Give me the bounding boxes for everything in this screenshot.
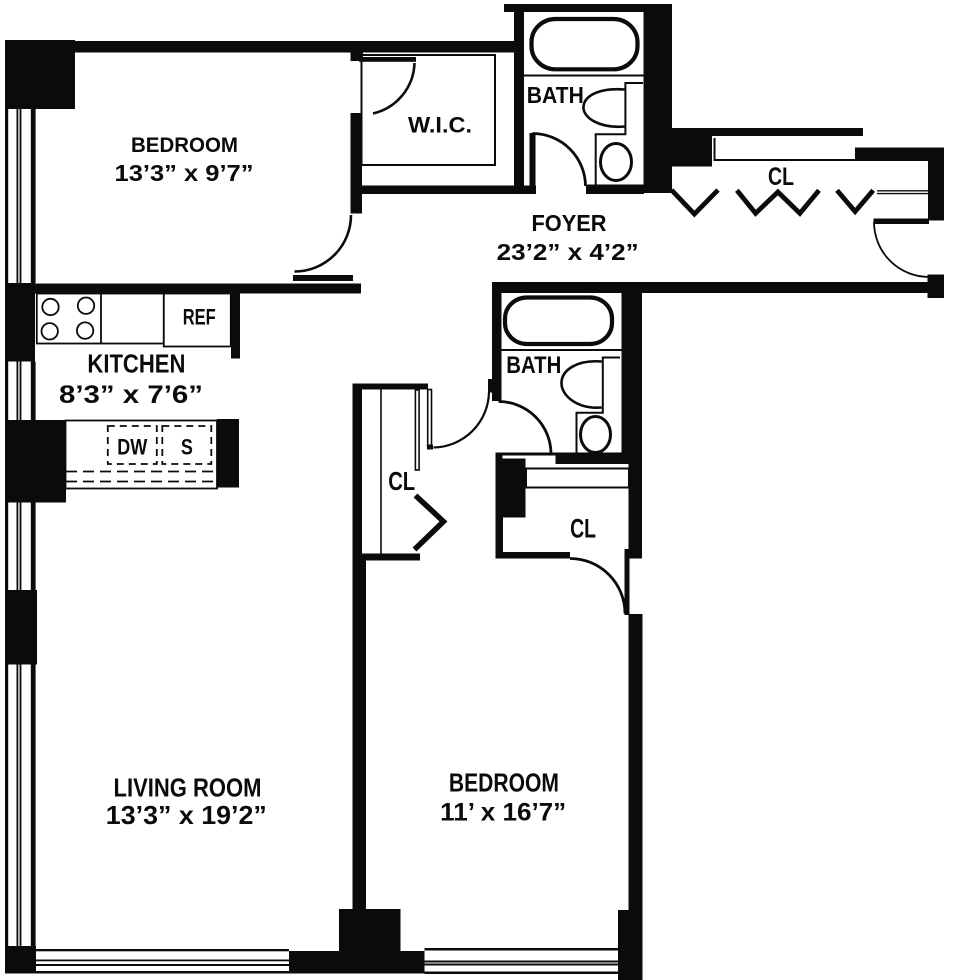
svg-text:LIVING ROOM: LIVING ROOM [114,772,262,802]
svg-text:CL: CL [388,466,415,496]
svg-text:8’3” x 7’6”: 8’3” x 7’6” [59,381,203,409]
svg-text:BEDROOM: BEDROOM [449,768,559,798]
svg-text:11’ x 16’7”: 11’ x 16’7” [440,799,566,827]
svg-text:FOYER: FOYER [532,210,607,236]
svg-text:W.I.C.: W.I.C. [408,113,472,138]
svg-text:DW: DW [117,435,147,460]
svg-text:REF: REF [183,305,216,330]
svg-text:13’3” x 19’2”: 13’3” x 19’2” [106,800,267,830]
svg-text:23’2” x 4’2”: 23’2” x 4’2” [497,239,639,265]
svg-text:BATH: BATH [527,82,584,108]
svg-text:S: S [181,435,193,460]
svg-text:CL: CL [570,514,596,544]
svg-text:BEDROOM: BEDROOM [131,134,238,157]
svg-text:CL: CL [768,163,794,191]
svg-text:13’3” x 9’7”: 13’3” x 9’7” [115,160,254,186]
svg-text:KITCHEN: KITCHEN [87,350,185,378]
svg-text:BATH: BATH [506,352,561,379]
